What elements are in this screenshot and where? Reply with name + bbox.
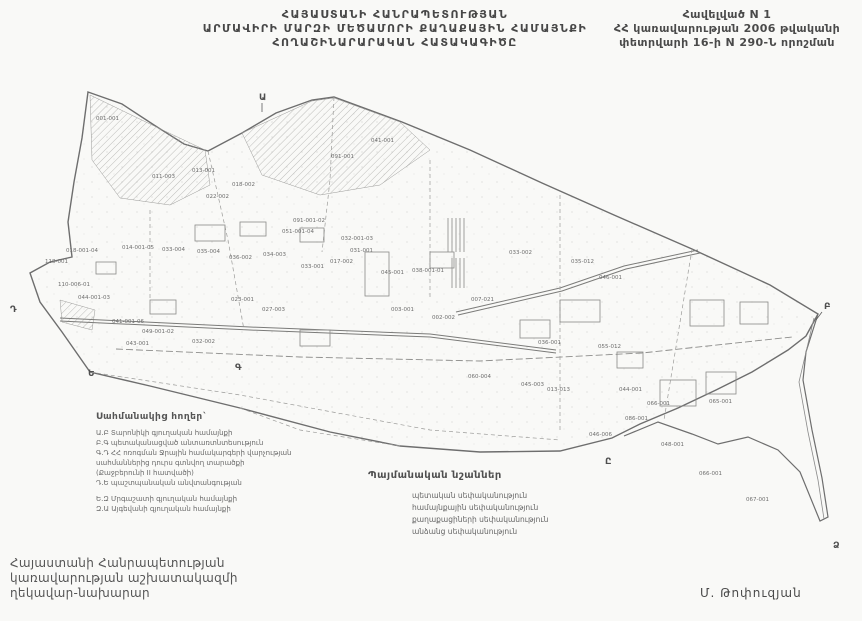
parcel-code: 041-001: [371, 138, 394, 144]
page-title: ՀԱՅԱՍՏԱՆԻ ՀԱՆՐԱՊԵՏՈՒԹՅԱՆ ԱՐՄԱՎԻՐԻ ՄԱՐԶԻ …: [130, 8, 660, 50]
parcel-code: 018-001-04: [66, 248, 98, 254]
parcel-code: 001-001: [96, 116, 119, 122]
parcel-code: 044-001-03: [78, 295, 110, 301]
parcel-code: 013-001: [192, 168, 215, 174]
parcel-code: 046-006: [589, 432, 612, 438]
parcel-code: 033-002: [509, 250, 532, 256]
boundary-letter: Ե: [88, 369, 95, 379]
tail-canal-line: [799, 318, 824, 519]
adjacent-land-item: Զ.Ա Այգեվանի գյուղական համայնքի: [96, 504, 366, 514]
parcel-code: 045-003: [521, 382, 544, 388]
parcel-code: 002-002: [432, 315, 455, 321]
legend-label: անձանց սեփականություն: [412, 527, 517, 536]
parcel-code: 048-001: [661, 442, 684, 448]
conventional-signs-legend: Պայմանական նշաններ պետական սեփականությու…: [368, 470, 568, 537]
parcel-code: 110-006-01: [58, 282, 90, 288]
parcel-code: 007-021: [471, 297, 494, 303]
parcel-code: 091-001-02: [293, 218, 325, 224]
parcel-code: 065-001: [709, 399, 732, 405]
legend-label: պետական սեփականություն: [412, 491, 527, 500]
parcel-code: 034-003: [263, 252, 286, 258]
adjacent-land-item: Ե.Զ Մրգաշատի գյուղական համայնքի: [96, 494, 366, 504]
annex-reference: Հավելված N 1 ՀՀ կառավարության 2006 թվակա…: [598, 8, 856, 50]
parcel-code: 031-001: [350, 248, 373, 254]
parcel-code: 027-003: [262, 307, 285, 313]
adjacent-land-item: Գ.Դ ՀՀ ոռոգման Ջրային համակարգերի վարչու…: [96, 448, 366, 458]
title-line-2: ԱՐՄԱՎԻՐԻ ՄԱՐԶԻ ՄԵԾԱՄՈՐԻ ՔԱՂԱՔԱՅԻՆ ՀԱՄԱՅՆ…: [130, 22, 660, 36]
boundary-letter: Ը: [605, 457, 611, 467]
adjacent-land-item: (Քաջբերունի II հատվածի): [96, 468, 366, 478]
parcel-code: 033-004: [162, 247, 185, 253]
parcel-code: 055-012: [598, 344, 621, 350]
signature-line-1: Հայաստանի Հանրապետության: [10, 556, 310, 571]
parcel-code: 014-001-05: [122, 245, 154, 251]
legend-row: համայնքային սեփականություն: [368, 501, 568, 513]
boundary-letter: Գ: [235, 363, 242, 373]
parcel-code: 066-001: [699, 471, 722, 477]
parcel-code: 013-013: [547, 387, 570, 393]
parcel-code: 060-004: [468, 374, 491, 380]
parcel-code: 049-001-02: [142, 329, 174, 335]
legend-row: պետական սեփականություն: [368, 489, 568, 501]
title-line-1: ՀԱՅԱՍՏԱՆԻ ՀԱՆՐԱՊԵՏՈՒԹՅԱՆ: [130, 8, 660, 22]
adjacent-land-item: Բ.Գ պետականացված անտառտնտեսություն: [96, 438, 366, 448]
boundary-letter: Ա: [259, 93, 266, 103]
parcel-code: 118-001: [45, 259, 68, 265]
parcel-code: 011-003: [152, 174, 175, 180]
signature-line-3: ղեկավար-նախարար: [10, 586, 310, 601]
parcel-code: 051-001-04: [282, 229, 314, 235]
legend-label: քաղաքացիների սեփականություն: [412, 515, 548, 524]
parcel-code: 036-001: [538, 340, 561, 346]
adjacent-lands-list: Սահմանակից հողեր` Ա.Բ Տարոնիկի գյուղական…: [96, 412, 366, 514]
legend-title: Պայմանական նշաններ: [368, 470, 568, 481]
title-line-3: ՀՈՂԱՇԻՆԱՐԱՐԱԿԱՆ ՀԱՏԱԿԱԳԻԾԸ: [130, 36, 660, 50]
parcel-code: 046-001: [599, 275, 622, 281]
parcel-code: 066-001: [647, 401, 670, 407]
parcel-code: 032-002: [192, 339, 215, 345]
signer-name: Մ. Թոփուզյան: [700, 586, 850, 600]
parcel-code: 035-004: [197, 249, 220, 255]
parcel-code: 032-001-03: [341, 236, 373, 242]
adjacent-land-item: սահմաններից դուրս գտնվող տարածքի: [96, 458, 366, 468]
signature-line-2: կառավարության աշխատակազմի: [10, 571, 310, 586]
parcel-code: 086-001: [625, 416, 648, 422]
parcel-code: 003-001: [391, 307, 414, 313]
parcel-code: 023-001: [231, 297, 254, 303]
adjacent-land-item: Դ.Ե պաշտպանական անվտանգության: [96, 478, 366, 488]
parcel-code: 018-002: [232, 182, 255, 188]
annex-line-1: Հավելված N 1: [598, 8, 856, 22]
parcel-code: 091-001: [331, 154, 354, 160]
parcel-code: 017-002: [330, 259, 353, 265]
annex-line-2: ՀՀ կառավարության 2006 թվականի: [598, 22, 856, 36]
legend-label: համայնքային սեփականություն: [412, 503, 538, 512]
parcel-code: 038-001-01: [412, 268, 444, 274]
parcel-code: 044-001: [619, 387, 642, 393]
boundary-letter: Բ: [824, 302, 831, 312]
boundary-letter: Դ: [10, 305, 17, 315]
boundary-letter: Ձ: [833, 541, 840, 551]
annex-line-3: փետրվարի 16-ի N 290-Ն որոշման: [598, 36, 856, 50]
legend-row: քաղաքացիների սեփականություն: [368, 513, 568, 525]
parcel-code: 036-002: [229, 255, 252, 261]
adjacent-lands-title: Սահմանակից հողեր`: [96, 412, 366, 422]
parcel-code: 045-001: [381, 270, 404, 276]
parcel-code: 043-001: [126, 341, 149, 347]
legend-row: անձանց սեփականություն: [368, 525, 568, 537]
parcel-code: 041-001-06: [112, 319, 144, 325]
signature-block: Հայաստանի Հանրապետության կառավարության ա…: [10, 556, 310, 601]
adjacent-land-item: Ա.Բ Տարոնիկի գյուղական համայնքի: [96, 428, 366, 438]
parcel-code: 022-002: [206, 194, 229, 200]
parcel-code: 035-012: [571, 259, 594, 265]
scanned-decree-map-page: { "page": {"bg": "#f9f9f7", "ink": "#3d3…: [0, 0, 862, 621]
parcel-code: 067-001: [746, 497, 769, 503]
parcel-code: 033-001: [301, 264, 324, 270]
